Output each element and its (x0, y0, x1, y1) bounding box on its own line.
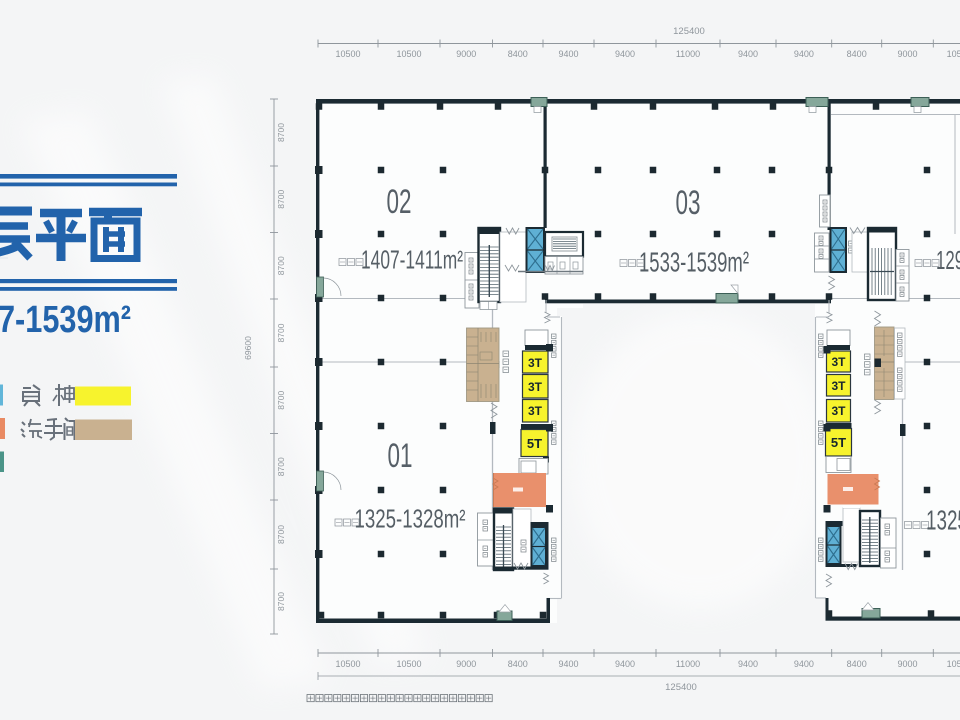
svg-text:3T: 3T (831, 404, 846, 418)
svg-text:03: 03 (676, 184, 701, 222)
svg-text:8700: 8700 (276, 457, 286, 476)
svg-text:8700: 8700 (276, 592, 286, 611)
svg-text:1325-1328m²: 1325-1328m² (355, 504, 466, 534)
svg-text:8700: 8700 (276, 525, 286, 544)
svg-text:5T: 5T (527, 436, 542, 451)
svg-text:9000: 9000 (897, 659, 917, 669)
svg-text:9400: 9400 (558, 659, 578, 669)
svg-text:1325-1328m²: 1325-1328m² (926, 505, 960, 536)
svg-text:8700: 8700 (276, 123, 286, 142)
svg-text:8400: 8400 (508, 659, 528, 669)
svg-text:9000: 9000 (456, 49, 476, 59)
svg-text:8700: 8700 (276, 256, 286, 275)
svg-text:9000: 9000 (456, 659, 476, 669)
svg-text:9400: 9400 (738, 49, 758, 59)
svg-text:10500: 10500 (335, 659, 360, 669)
svg-text:10500: 10500 (947, 49, 960, 59)
svg-text:3T: 3T (528, 380, 543, 394)
svg-text:9400: 9400 (615, 659, 635, 669)
svg-text:3T: 3T (528, 404, 543, 418)
svg-text:8400: 8400 (847, 659, 867, 669)
svg-text:11000: 11000 (676, 659, 700, 669)
svg-text:10500: 10500 (335, 49, 360, 59)
svg-text:9000: 9000 (897, 49, 917, 59)
svg-text:1533-1539m²: 1533-1539m² (639, 247, 749, 278)
svg-text:8400: 8400 (508, 49, 528, 59)
svg-text:9400: 9400 (794, 49, 814, 59)
svg-text:3T: 3T (831, 379, 846, 393)
svg-text:01: 01 (388, 437, 413, 475)
svg-text:1407-1411m²: 1407-1411m² (361, 245, 463, 275)
svg-text:8400: 8400 (847, 49, 867, 59)
svg-text:11000: 11000 (676, 49, 700, 59)
svg-text:3T: 3T (528, 356, 543, 370)
svg-text:8700: 8700 (276, 323, 286, 342)
svg-text:9400: 9400 (794, 659, 814, 669)
svg-text:9400: 9400 (615, 49, 635, 59)
svg-text:125400: 125400 (673, 26, 705, 37)
svg-text:9400: 9400 (558, 49, 578, 59)
svg-text:7-1539m²: 7-1539m² (0, 299, 131, 341)
svg-text:1297-1303m²: 1297-1303m² (936, 245, 960, 275)
svg-text:10500: 10500 (947, 659, 960, 669)
svg-text:02: 02 (387, 183, 412, 221)
svg-text:69600: 69600 (243, 336, 253, 360)
svg-text:3T: 3T (831, 355, 846, 369)
svg-text:9400: 9400 (738, 659, 758, 669)
svg-text:10500: 10500 (396, 49, 421, 59)
svg-text:8700: 8700 (276, 391, 286, 410)
svg-text:10500: 10500 (396, 659, 421, 669)
svg-text:8700: 8700 (276, 190, 286, 209)
svg-text:5T: 5T (831, 435, 846, 450)
svg-text:125400: 125400 (665, 682, 697, 693)
